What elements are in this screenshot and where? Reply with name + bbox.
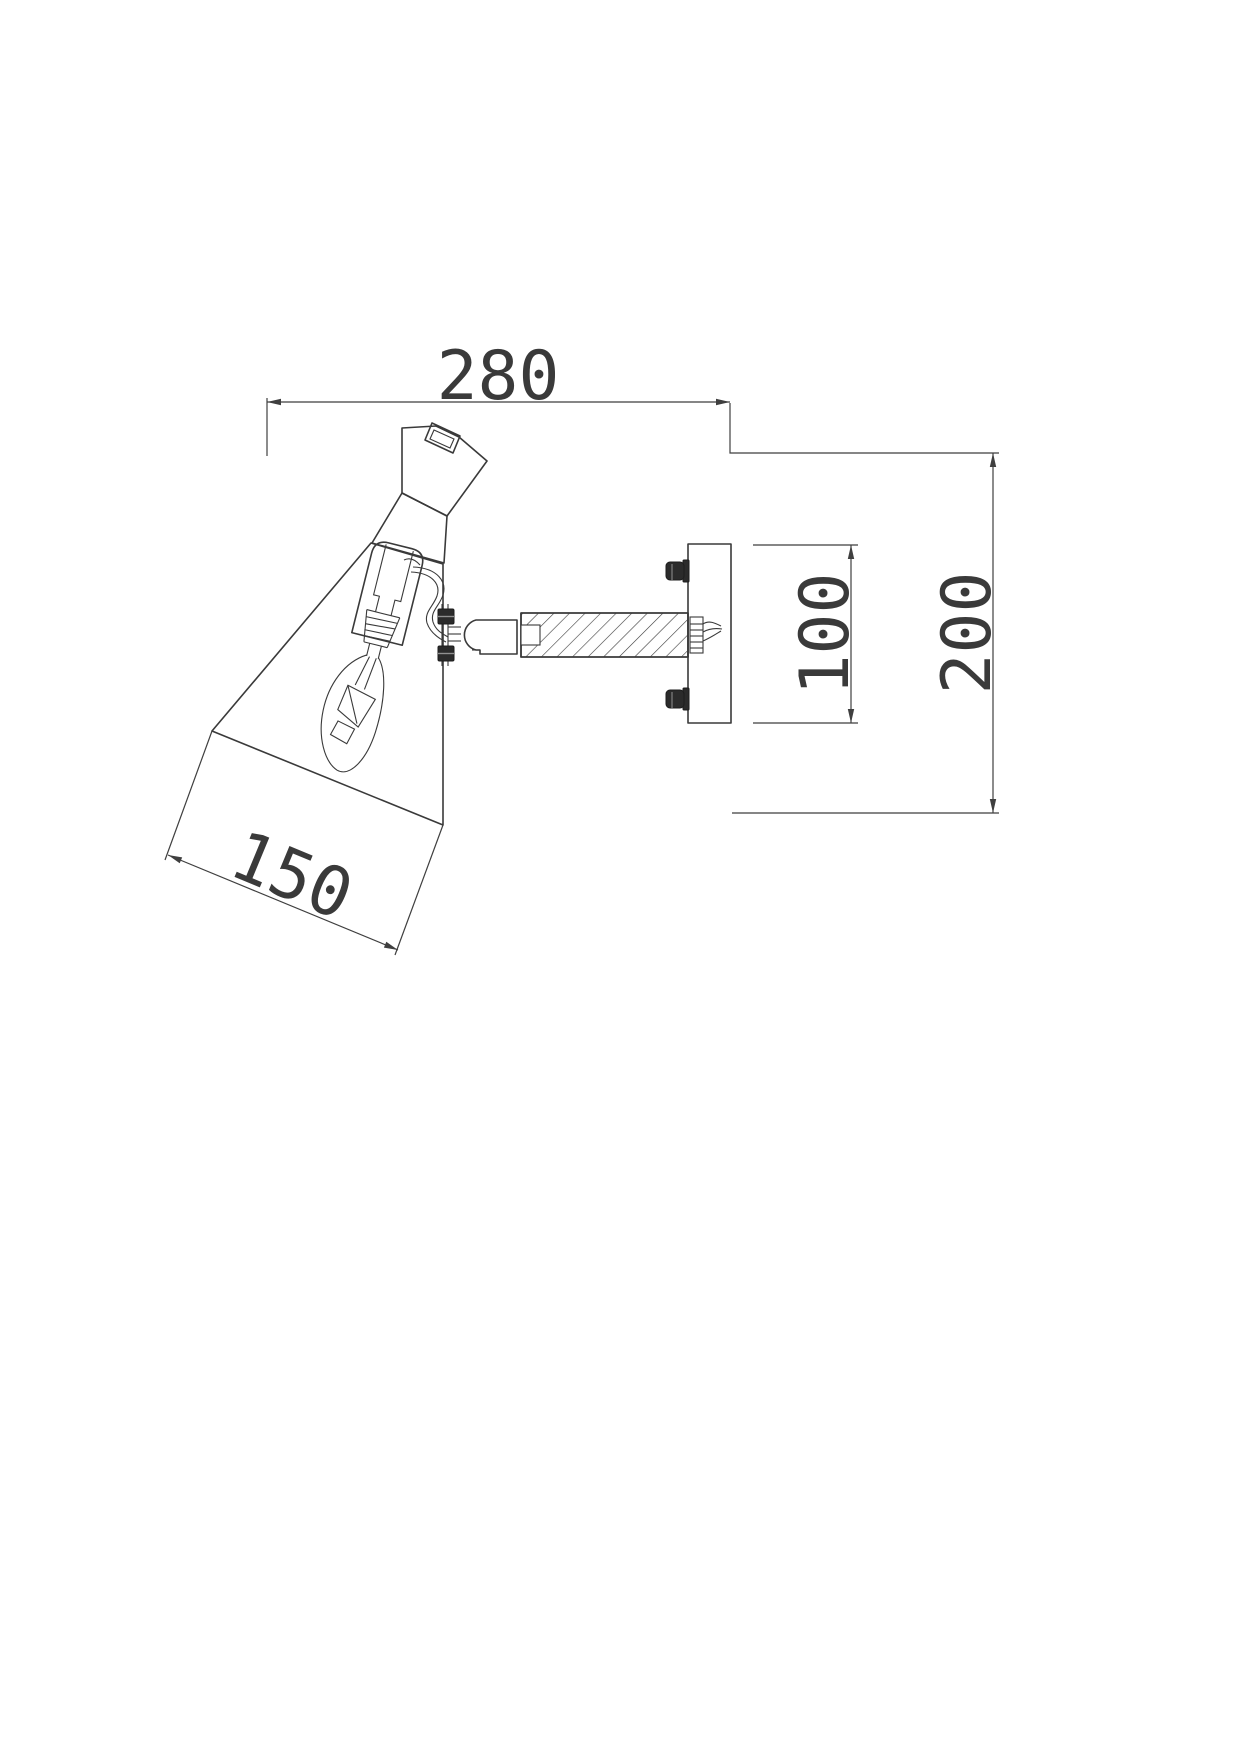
dim-label-150: 150 [220, 816, 364, 936]
arrow-down-icon [848, 709, 854, 723]
thread-stub [521, 625, 540, 645]
lamp-shade [212, 543, 443, 825]
wire [404, 559, 448, 642]
arrow-left-icon [168, 855, 182, 863]
drawing-sheet: 280 200 100 150 [0, 0, 1241, 1754]
dimension-100: 100 [753, 545, 865, 723]
lamp-assembly [212, 423, 731, 825]
mounting-screw-bottom [666, 688, 689, 710]
arrow-up-icon [848, 545, 854, 559]
plate-wires [703, 622, 722, 641]
arrow-down-icon [990, 799, 996, 813]
dimension-150: 150 [165, 731, 443, 955]
shade-bracket [438, 604, 454, 666]
arrow-right-icon [716, 399, 730, 405]
filament [329, 652, 385, 748]
fixing-nut [690, 617, 703, 653]
dim-label-280: 280 [437, 337, 560, 416]
arrow-right-icon [384, 942, 398, 950]
technical-drawing: 280 200 100 150 [0, 0, 1241, 1754]
dim-label-200: 200 [928, 572, 1007, 695]
wall-plate [688, 544, 731, 723]
lamp-socket [310, 537, 426, 778]
dimension-280: 280 [267, 337, 730, 456]
swivel-joint [448, 620, 517, 654]
arrow-up-icon [990, 453, 996, 467]
adjustment-knob [425, 423, 460, 453]
mounting-screw-top [666, 560, 689, 582]
dim-label-100: 100 [786, 573, 865, 696]
dimension-200: 200 [730, 403, 1007, 813]
arrow-left-icon [267, 399, 281, 405]
candle-bulb [310, 648, 394, 778]
threaded-arm [521, 613, 688, 657]
